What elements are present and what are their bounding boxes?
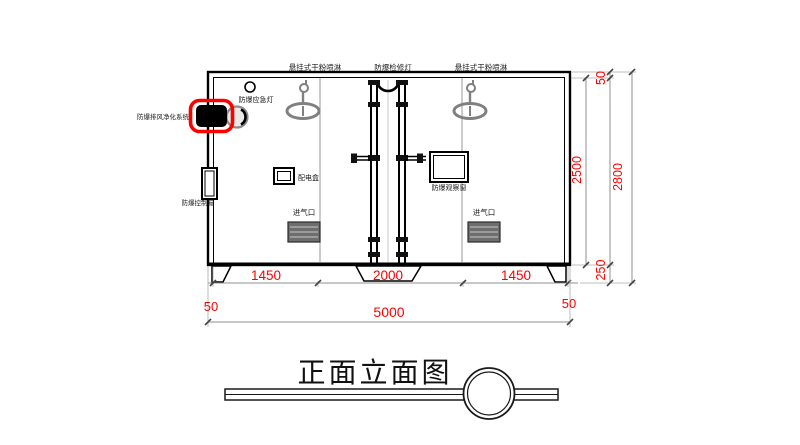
label-emergency-light: 防爆应急灯 xyxy=(239,95,274,104)
label-inspection-light: 防爆检修灯 xyxy=(374,62,412,72)
label-purification-system: 防爆排风净化系统 xyxy=(137,112,190,121)
label-distribution-box: 配电盒 xyxy=(298,173,319,182)
front-elevation-svg: 悬挂式干粉喷淋 防爆检修灯 悬挂式干粉喷淋 防爆应急灯 防爆排风净化系统 防爆控… xyxy=(0,0,800,445)
label-air-inlet-right: 进气口 xyxy=(473,207,496,217)
air-inlet-right-vent xyxy=(468,222,500,242)
control-box xyxy=(202,168,217,199)
dim-total-width: 5000 xyxy=(373,304,404,320)
label-air-inlet-left: 进气口 xyxy=(293,207,316,217)
dim-roof-thickness: 50 xyxy=(594,71,608,85)
emblem-circle-outer xyxy=(464,368,515,419)
dim-total-height: 2800 xyxy=(611,163,625,191)
dim-leg-height: 250 xyxy=(594,260,608,281)
air-inlet-left-vent xyxy=(288,222,320,242)
dim-wall-thickness-right: 50 xyxy=(562,296,576,311)
dim-width-right-section: 1450 xyxy=(501,268,531,283)
drawing-title: 正面立面图 xyxy=(297,356,452,389)
elevation-drawing-canvas: 悬挂式干粉喷淋 防爆检修灯 悬挂式干粉喷淋 防爆应急灯 防爆排风净化系统 防爆控… xyxy=(0,0,800,445)
dim-width-left-section: 1450 xyxy=(251,268,281,283)
emergency-light-icon xyxy=(245,82,255,92)
dim-wall-thickness-left: 50 xyxy=(204,299,218,314)
label-observation-window: 防爆观察窗 xyxy=(432,183,467,192)
dim-inner-height: 2500 xyxy=(570,156,584,184)
label-sprinkler-left: 悬挂式干粉喷淋 xyxy=(289,62,342,72)
dim-width-middle-section: 2000 xyxy=(373,268,403,283)
distribution-box xyxy=(274,168,294,184)
label-control-box: 防爆控制箱 xyxy=(182,198,215,207)
observation-window xyxy=(430,152,468,182)
label-sprinkler-right: 悬挂式干粉喷淋 xyxy=(455,62,508,72)
